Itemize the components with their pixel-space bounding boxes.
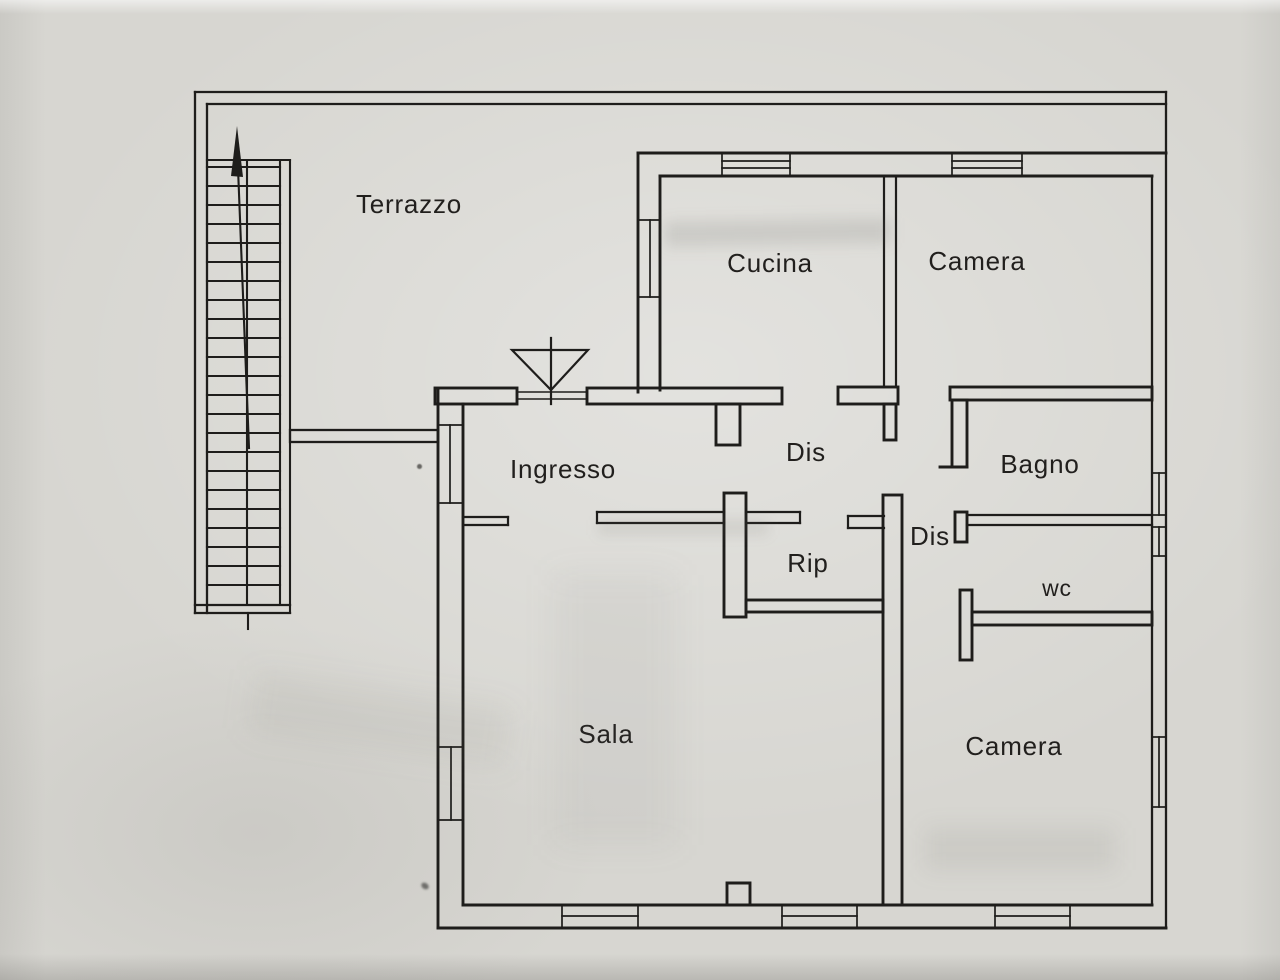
room-label-rip: Rip — [787, 548, 828, 578]
window-camera-south — [995, 905, 1070, 928]
chimney-pillar — [727, 883, 750, 905]
terrace-wall — [290, 430, 438, 442]
staircase — [207, 160, 290, 629]
window-cucina-north — [722, 153, 790, 176]
room-label-terrazzo: Terrazzo — [356, 189, 462, 219]
room-label-dis-1: Dis — [786, 437, 826, 467]
window-sala-west — [438, 747, 463, 820]
window-sala-south-2 — [782, 905, 857, 928]
floor-plan-drawing: Terrazzo Cucina Camera Ingresso Dis Bagn… — [0, 0, 1280, 980]
window-camera-north — [952, 153, 1022, 176]
window-bagno-east — [1152, 473, 1166, 515]
window-ingresso-west — [438, 425, 463, 503]
stair-treads — [207, 167, 280, 585]
room-label-sala: Sala — [578, 719, 633, 749]
room-label-camera-sud: Camera — [965, 731, 1062, 761]
window-cucina-west — [638, 220, 660, 297]
room-label-cucina: Cucina — [727, 248, 813, 278]
room-label-bagno: Bagno — [1000, 449, 1079, 479]
window-sala-south-1 — [562, 905, 638, 928]
room-label-ingresso: Ingresso — [510, 454, 616, 484]
entrance-door-icon — [512, 338, 588, 404]
scanned-floor-plan-photo: Terrazzo Cucina Camera Ingresso Dis Bagn… — [0, 0, 1280, 980]
window-wc-east — [1152, 527, 1166, 556]
terrace-parapet-outline — [195, 92, 1166, 928]
room-label-camera-nord: Camera — [928, 246, 1025, 276]
room-label-dis-2: Dis — [910, 521, 950, 551]
window-camera-east — [1152, 737, 1166, 807]
interior-walls — [435, 176, 1152, 905]
room-labels: Terrazzo Cucina Camera Ingresso Dis Bagn… — [356, 189, 1080, 761]
room-label-wc: wc — [1041, 575, 1072, 601]
